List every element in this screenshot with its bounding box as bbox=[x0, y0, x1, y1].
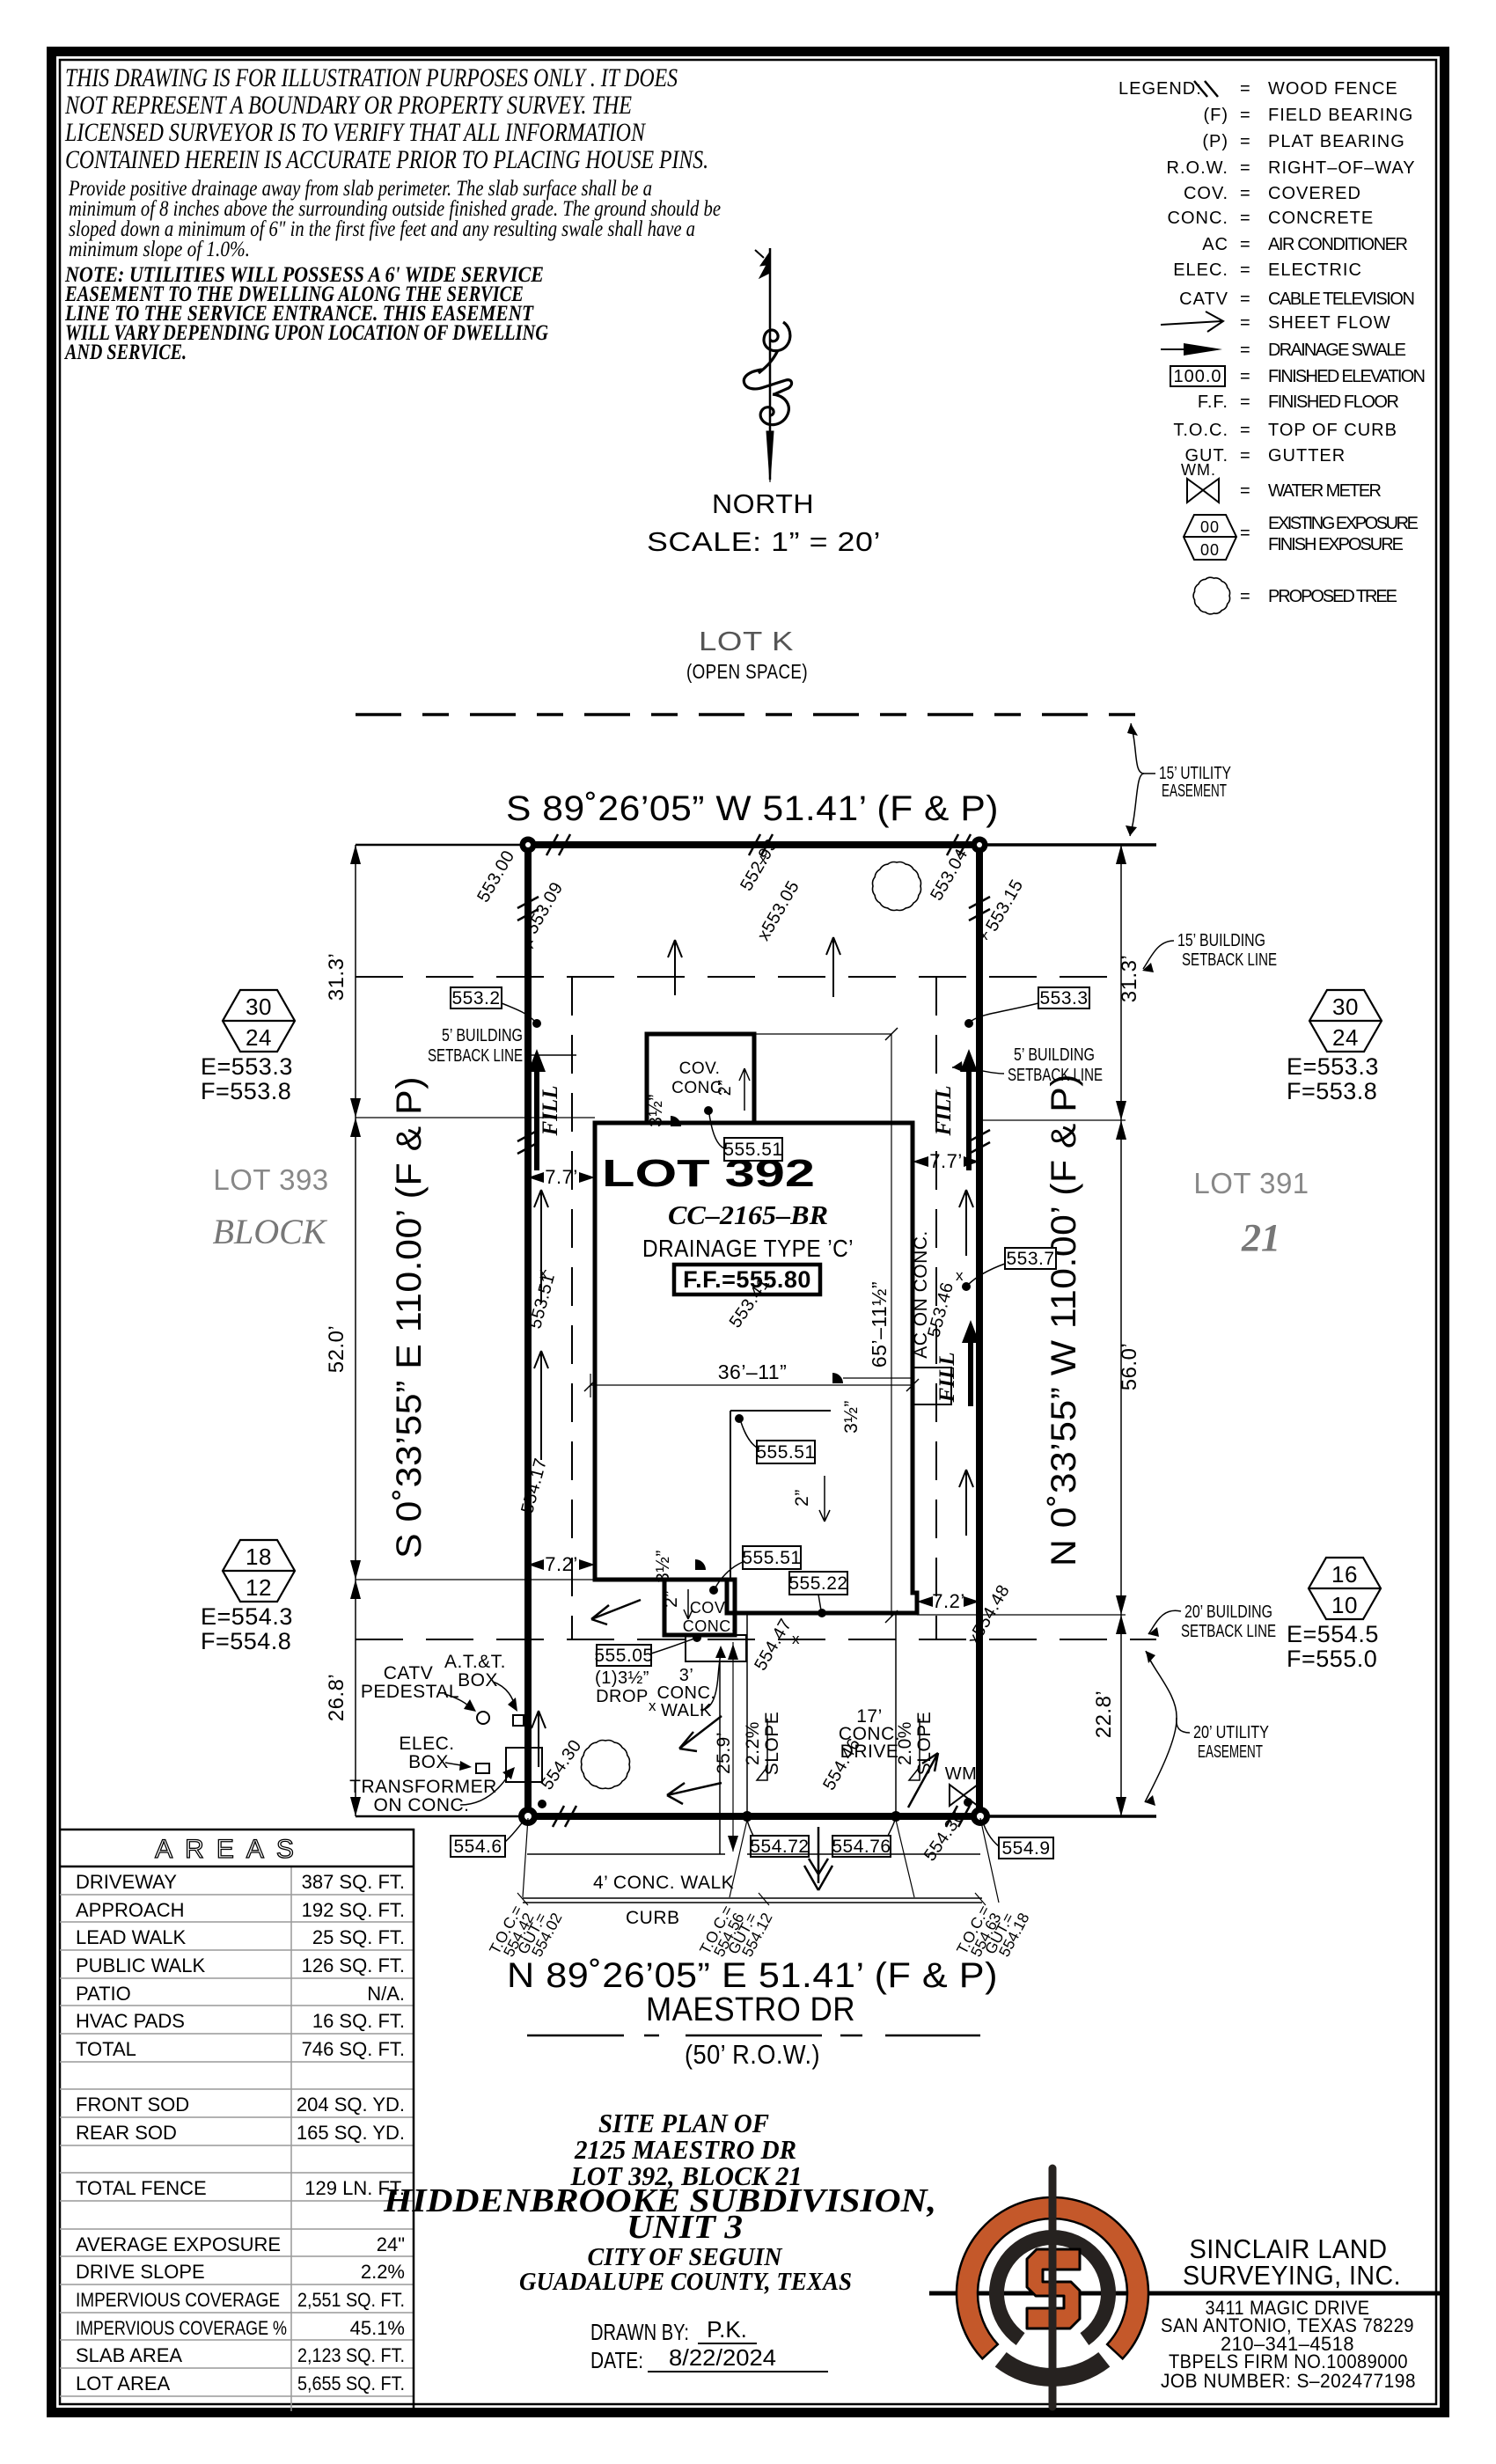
svg-text:=: = bbox=[1240, 421, 1251, 440]
svg-text:PROPOSED TREE: PROPOSED TREE bbox=[1268, 587, 1398, 606]
svg-text:18: 18 bbox=[246, 1544, 272, 1570]
svg-text:SETBACK LINE: SETBACK LINE bbox=[428, 1046, 523, 1066]
svg-text:THIS DRAWING IS FOR ILLUSTRATI: THIS DRAWING IS FOR ILLUSTRATION PURPOSE… bbox=[65, 63, 678, 92]
svg-text:LOT AREA: LOT AREA bbox=[76, 2372, 171, 2394]
svg-text:x: x bbox=[956, 1267, 964, 1284]
svg-text:LOT 393: LOT 393 bbox=[213, 1163, 328, 1196]
svg-text:2”: 2” bbox=[715, 1080, 735, 1096]
svg-text:DRAINAGE TYPE ’C’: DRAINAGE TYPE ’C’ bbox=[642, 1235, 854, 1262]
svg-text:x: x bbox=[792, 1631, 800, 1647]
svg-text:PUBLIC WALK: PUBLIC WALK bbox=[76, 1954, 205, 1976]
svg-text:=: = bbox=[1240, 79, 1251, 99]
svg-text:S 0˚33’55” E 110.00’ (F & P): S 0˚33’55” E 110.00’ (F & P) bbox=[390, 1076, 429, 1558]
svg-text:24: 24 bbox=[1332, 1024, 1359, 1051]
svg-text:SLOPE: SLOPE bbox=[762, 1712, 782, 1776]
svg-text:TRANSFORMER: TRANSFORMER bbox=[349, 1777, 497, 1797]
svg-text:746 SQ. FT.: 746 SQ. FT. bbox=[302, 2038, 405, 2060]
svg-text:(OPEN SPACE): (OPEN SPACE) bbox=[686, 660, 808, 683]
svg-text:387 SQ. FT.: 387 SQ. FT. bbox=[302, 1871, 405, 1893]
svg-text:=: = bbox=[1240, 235, 1251, 254]
svg-text:S 89˚26’05” W 51.41’ (F & P): S 89˚26’05” W 51.41’ (F & P) bbox=[506, 789, 999, 828]
svg-text:E=553.3: E=553.3 bbox=[1287, 1053, 1379, 1080]
svg-text:UNIT 3: UNIT 3 bbox=[627, 2209, 743, 2246]
svg-text:5’ BUILDING: 5’ BUILDING bbox=[442, 1026, 523, 1045]
svg-text:AREAS: AREAS bbox=[155, 1835, 306, 1864]
svg-text:20’ BUILDING: 20’ BUILDING bbox=[1184, 1602, 1272, 1622]
svg-text:=: = bbox=[1240, 587, 1251, 606]
svg-text:LICENSED SURVEYOR IS TO VERIFY: LICENSED SURVEYOR IS TO VERIFY THAT ALL … bbox=[64, 118, 646, 147]
svg-text:N/A.: N/A. bbox=[367, 1983, 405, 2005]
svg-text:(1)3½”: (1)3½” bbox=[595, 1668, 649, 1688]
svg-text:2”: 2” bbox=[792, 1489, 812, 1507]
svg-text:3½”: 3½” bbox=[646, 1094, 666, 1127]
svg-text:EASEMENT: EASEMENT bbox=[1198, 1742, 1263, 1762]
svg-text:31.3’: 31.3’ bbox=[1118, 955, 1141, 1003]
svg-text:ELEC.: ELEC. bbox=[1173, 260, 1228, 280]
svg-text:T.O.C.: T.O.C. bbox=[1173, 421, 1228, 440]
svg-text:555.05: 555.05 bbox=[594, 1646, 653, 1666]
svg-text:x: x bbox=[526, 935, 534, 952]
svg-text:PEDESTAL: PEDESTAL bbox=[361, 1682, 459, 1702]
svg-text:F=555.0: F=555.0 bbox=[1287, 1646, 1377, 1672]
svg-text:FINISH EXPOSURE: FINISH EXPOSURE bbox=[1268, 535, 1404, 554]
svg-text:22.8’: 22.8’ bbox=[1092, 1690, 1116, 1739]
svg-text:=: = bbox=[1240, 481, 1251, 501]
svg-text:2”: 2” bbox=[661, 1590, 681, 1608]
svg-text:24: 24 bbox=[246, 1024, 272, 1051]
svg-text:2,551 SQ. FT.: 2,551 SQ. FT. bbox=[297, 2289, 405, 2311]
svg-text:=: = bbox=[1240, 184, 1251, 203]
svg-text:LEGEND:: LEGEND: bbox=[1118, 79, 1202, 99]
svg-text:15’ UTILITY: 15’ UTILITY bbox=[1159, 764, 1231, 783]
svg-text:20’ UTILITY: 20’ UTILITY bbox=[1193, 1723, 1269, 1742]
svg-text:CABLE TELEVISION: CABLE TELEVISION bbox=[1268, 290, 1416, 309]
svg-text:E=553.3: E=553.3 bbox=[201, 1053, 293, 1080]
svg-text:BOX: BOX bbox=[458, 1670, 498, 1690]
svg-text:WM.: WM. bbox=[945, 1764, 983, 1784]
svg-text:SLOPE: SLOPE bbox=[914, 1712, 935, 1776]
svg-text:WALK: WALK bbox=[661, 1701, 712, 1720]
svg-text:x: x bbox=[759, 851, 767, 868]
svg-text:AIR CONDITIONER: AIR CONDITIONER bbox=[1268, 235, 1409, 254]
svg-text:NOT REPRESENT A BOUNDARY OR PR: NOT REPRESENT A BOUNDARY OR PROPERTY SUR… bbox=[64, 91, 632, 120]
svg-text:21: 21 bbox=[1241, 1216, 1280, 1259]
svg-text:APPROACH: APPROACH bbox=[76, 1899, 184, 1921]
svg-text:REAR SOD: REAR SOD bbox=[76, 2122, 177, 2144]
svg-text:WOOD FENCE: WOOD FENCE bbox=[1268, 79, 1398, 99]
svg-text:minimum slope of 1.0%.: minimum slope of 1.0%. bbox=[69, 238, 250, 261]
svg-text:FRONT SOD: FRONT SOD bbox=[76, 2094, 189, 2116]
svg-text:2,123 SQ. FT.: 2,123 SQ. FT. bbox=[297, 2344, 405, 2366]
svg-text:DRIVEWAY: DRIVEWAY bbox=[76, 1871, 177, 1893]
svg-text:3½”: 3½” bbox=[841, 1400, 862, 1434]
svg-text:CATV: CATV bbox=[384, 1663, 433, 1683]
svg-text:PATIO: PATIO bbox=[76, 1983, 131, 2005]
svg-text:7.2’: 7.2’ bbox=[932, 1590, 964, 1612]
svg-text:BOX: BOX bbox=[408, 1752, 449, 1772]
svg-text:BLOCK: BLOCK bbox=[213, 1212, 328, 1251]
svg-text:SLAB AREA: SLAB AREA bbox=[76, 2344, 182, 2366]
svg-text:x: x bbox=[649, 1698, 656, 1714]
svg-text:8/22/2024: 8/22/2024 bbox=[669, 2344, 776, 2371]
svg-text:CONC.: CONC. bbox=[1168, 209, 1228, 228]
svg-text:N 89˚26’05” E 51.41’ (F & P): N 89˚26’05” E 51.41’ (F & P) bbox=[507, 1956, 998, 1995]
svg-text:=: = bbox=[1240, 341, 1251, 360]
svg-text:CONC.: CONC. bbox=[683, 1617, 737, 1635]
svg-text:HVAC PADS: HVAC PADS bbox=[76, 2010, 185, 2032]
svg-text:45.1%: 45.1% bbox=[350, 2317, 405, 2339]
svg-text:FINISHED ELEVATION: FINISHED ELEVATION bbox=[1268, 367, 1426, 386]
svg-text:F=554.8: F=554.8 bbox=[201, 1628, 291, 1654]
svg-text:12: 12 bbox=[246, 1574, 272, 1601]
svg-text:ON CONC.: ON CONC. bbox=[374, 1795, 470, 1815]
svg-text:=: = bbox=[1240, 446, 1251, 466]
svg-text:x: x bbox=[980, 927, 988, 943]
svg-text:A.T.&T.: A.T.&T. bbox=[444, 1652, 506, 1672]
svg-text:15’ BUILDING: 15’ BUILDING bbox=[1177, 931, 1265, 950]
svg-text:RIGHT–OF–WAY: RIGHT–OF–WAY bbox=[1268, 158, 1416, 178]
svg-text:555.51: 555.51 bbox=[756, 1442, 815, 1463]
svg-text:N 0˚33’55” W 110.00’ (F & P): N 0˚33’55” W 110.00’ (F & P) bbox=[1045, 1074, 1083, 1566]
svg-text:COV.: COV. bbox=[690, 1599, 729, 1617]
svg-text:WATER METER: WATER METER bbox=[1268, 481, 1382, 501]
svg-text:=: = bbox=[1240, 158, 1251, 178]
svg-text:555.51: 555.51 bbox=[723, 1140, 782, 1160]
svg-text:DRAWN BY:: DRAWN BY: bbox=[590, 2319, 689, 2345]
svg-text:553.3: 553.3 bbox=[1039, 988, 1088, 1008]
svg-text:555.51: 555.51 bbox=[742, 1548, 801, 1568]
svg-text:165 SQ. YD.: 165 SQ. YD. bbox=[297, 2122, 405, 2144]
svg-text:(P): (P) bbox=[1202, 132, 1228, 151]
svg-text:FILL: FILL bbox=[932, 1086, 956, 1137]
svg-text:2.0%: 2.0% bbox=[895, 1721, 915, 1765]
svg-text:=: = bbox=[1240, 106, 1251, 125]
svg-text:SETBACK LINE: SETBACK LINE bbox=[1182, 950, 1277, 970]
svg-text:204 SQ. YD.: 204 SQ. YD. bbox=[297, 2094, 405, 2116]
svg-text:3’: 3’ bbox=[679, 1666, 694, 1685]
svg-text:31.3’: 31.3’ bbox=[325, 953, 348, 1001]
svg-text:SURVEYING, INC.: SURVEYING, INC. bbox=[1183, 2260, 1401, 2291]
svg-text:TOP OF CURB: TOP OF CURB bbox=[1268, 421, 1397, 440]
svg-text:36’–11”: 36’–11” bbox=[718, 1360, 788, 1383]
svg-text:553.2: 553.2 bbox=[451, 988, 500, 1008]
svg-text:E=554.3: E=554.3 bbox=[201, 1603, 293, 1630]
svg-text:7.2’: 7.2’ bbox=[545, 1553, 577, 1575]
svg-text:MAESTRO DR: MAESTRO DR bbox=[646, 1991, 855, 2028]
svg-text:FILL: FILL bbox=[935, 1353, 959, 1404]
svg-text:COV.: COV. bbox=[679, 1060, 721, 1078]
svg-text:ELEC.: ELEC. bbox=[399, 1734, 454, 1754]
svg-text:F=553.8: F=553.8 bbox=[201, 1078, 291, 1104]
svg-text:24": 24" bbox=[377, 2233, 405, 2255]
svg-text:TOTAL: TOTAL bbox=[76, 2038, 136, 2060]
svg-text:=: = bbox=[1240, 313, 1251, 333]
svg-text:DRIVE SLOPE: DRIVE SLOPE bbox=[76, 2261, 205, 2283]
svg-text:F.F.: F.F. bbox=[1198, 392, 1228, 412]
svg-text:=: = bbox=[1240, 209, 1251, 228]
svg-text:554.9: 554.9 bbox=[1001, 1838, 1050, 1859]
svg-text:5’ BUILDING: 5’ BUILDING bbox=[1014, 1045, 1095, 1065]
svg-text:EXISTING EXPOSURE: EXISTING EXPOSURE bbox=[1268, 514, 1419, 533]
svg-text:554.6: 554.6 bbox=[453, 1837, 502, 1857]
svg-text:WM.: WM. bbox=[1181, 461, 1216, 479]
svg-text:30: 30 bbox=[1332, 994, 1359, 1020]
svg-text:E=554.5: E=554.5 bbox=[1287, 1621, 1379, 1647]
svg-text:7.7’: 7.7’ bbox=[545, 1166, 577, 1188]
svg-text:DROP: DROP bbox=[596, 1687, 649, 1706]
svg-text:GUADALUPE COUNTY, TEXAS: GUADALUPE COUNTY, TEXAS bbox=[519, 2268, 852, 2296]
svg-text:65’–11½”: 65’–11½” bbox=[868, 1281, 891, 1368]
svg-text:=: = bbox=[1240, 367, 1251, 386]
svg-text:TOTAL FENCE: TOTAL FENCE bbox=[76, 2177, 207, 2199]
svg-text:100.0: 100.0 bbox=[1173, 367, 1221, 386]
svg-text:EASEMENT: EASEMENT bbox=[1162, 781, 1227, 801]
svg-text:4’ CONC. WALK: 4’ CONC. WALK bbox=[593, 1873, 734, 1893]
svg-text:JOB NUMBER: S–202477198: JOB NUMBER: S–202477198 bbox=[1161, 2370, 1416, 2392]
svg-text:FINISHED FLOOR: FINISHED FLOOR bbox=[1268, 392, 1400, 412]
svg-text:(F): (F) bbox=[1203, 106, 1228, 125]
svg-text:=: = bbox=[1240, 132, 1251, 151]
svg-text:DRAINAGE SWALE: DRAINAGE SWALE bbox=[1268, 341, 1407, 360]
svg-text:ELECTRIC: ELECTRIC bbox=[1268, 260, 1362, 280]
svg-text:10: 10 bbox=[1331, 1592, 1358, 1618]
svg-text:AC ON CONC.: AC ON CONC. bbox=[911, 1230, 931, 1359]
svg-text:=: = bbox=[1240, 290, 1251, 309]
svg-text:26.8’: 26.8’ bbox=[325, 1674, 348, 1722]
svg-text:SETBACK LINE: SETBACK LINE bbox=[1181, 1622, 1276, 1641]
svg-text:00: 00 bbox=[1200, 541, 1220, 559]
svg-text:16: 16 bbox=[1331, 1561, 1358, 1588]
svg-text:5,655 SQ. FT.: 5,655 SQ. FT. bbox=[297, 2372, 405, 2394]
svg-text:AVERAGE EXPOSURE: AVERAGE EXPOSURE bbox=[76, 2233, 281, 2255]
svg-text:IMPERVIOUS COVERAGE %: IMPERVIOUS COVERAGE % bbox=[76, 2317, 287, 2339]
svg-text:25.9’: 25.9’ bbox=[714, 1732, 734, 1774]
svg-text:x: x bbox=[539, 1265, 547, 1281]
svg-text:F=553.8: F=553.8 bbox=[1287, 1078, 1377, 1104]
svg-text:FIELD BEARING: FIELD BEARING bbox=[1268, 106, 1413, 125]
svg-text:555.22: 555.22 bbox=[788, 1573, 847, 1594]
svg-text:CONC.: CONC. bbox=[657, 1683, 716, 1703]
svg-text:126 SQ. FT.: 126 SQ. FT. bbox=[302, 1954, 405, 1976]
svg-text:CONCRETE: CONCRETE bbox=[1268, 209, 1374, 228]
svg-text:AND SERVICE.: AND SERVICE. bbox=[63, 341, 187, 364]
svg-text:R.O.W.: R.O.W. bbox=[1167, 158, 1228, 178]
svg-text:=: = bbox=[1240, 392, 1251, 412]
svg-text:7.7’: 7.7’ bbox=[929, 1150, 962, 1172]
svg-text:AC: AC bbox=[1202, 235, 1228, 254]
svg-text:NORTH: NORTH bbox=[712, 488, 814, 519]
svg-text:25 SQ. FT.: 25 SQ. FT. bbox=[312, 1926, 405, 1948]
svg-text:COVERED: COVERED bbox=[1268, 184, 1361, 203]
svg-text:FILL: FILL bbox=[539, 1086, 562, 1137]
svg-text:SCALE: 1” = 20’: SCALE: 1” = 20’ bbox=[647, 526, 881, 557]
svg-text:PLAT BEARING: PLAT BEARING bbox=[1268, 132, 1405, 151]
svg-text:00: 00 bbox=[1200, 518, 1220, 536]
svg-text:LEAD WALK: LEAD WALK bbox=[76, 1926, 186, 1948]
svg-text:56.0’: 56.0’ bbox=[1118, 1343, 1141, 1391]
svg-text:30: 30 bbox=[246, 994, 272, 1020]
svg-text:DRIVE: DRIVE bbox=[840, 1742, 899, 1762]
svg-text:LOT K: LOT K bbox=[699, 626, 794, 656]
svg-text:52.0’: 52.0’ bbox=[325, 1325, 348, 1374]
svg-text:CURB: CURB bbox=[626, 1908, 680, 1928]
svg-text:3½”: 3½” bbox=[653, 1550, 673, 1583]
svg-text:SHEET FLOW: SHEET FLOW bbox=[1268, 313, 1391, 333]
svg-text:2.2%: 2.2% bbox=[361, 2261, 405, 2283]
svg-text:2.2%: 2.2% bbox=[743, 1721, 763, 1765]
svg-text:DATE:: DATE: bbox=[590, 2347, 643, 2373]
svg-text:=: = bbox=[1240, 524, 1251, 543]
svg-text:192 SQ. FT.: 192 SQ. FT. bbox=[302, 1899, 405, 1921]
svg-text:CATV: CATV bbox=[1179, 290, 1228, 309]
svg-text:CONTAINED HEREIN IS ACCURATE P: CONTAINED HEREIN IS ACCURATE PRIOR TO PL… bbox=[65, 145, 708, 174]
svg-text:(50’ R.O.W.): (50’ R.O.W.) bbox=[685, 2039, 820, 2070]
svg-text:IMPERVIOUS COVERAGE: IMPERVIOUS COVERAGE bbox=[76, 2289, 280, 2311]
svg-text:P.K.: P.K. bbox=[707, 2316, 747, 2343]
svg-text:COV.: COV. bbox=[1184, 184, 1228, 203]
svg-text:553.7: 553.7 bbox=[1006, 1249, 1054, 1269]
svg-text:=: = bbox=[1240, 260, 1251, 280]
svg-text:CC–2165–BR: CC–2165–BR bbox=[668, 1199, 828, 1230]
svg-text:GUTTER: GUTTER bbox=[1268, 446, 1346, 466]
svg-text:16 SQ. FT.: 16 SQ. FT. bbox=[312, 2010, 405, 2032]
svg-text:LOT 391: LOT 391 bbox=[1193, 1167, 1309, 1199]
